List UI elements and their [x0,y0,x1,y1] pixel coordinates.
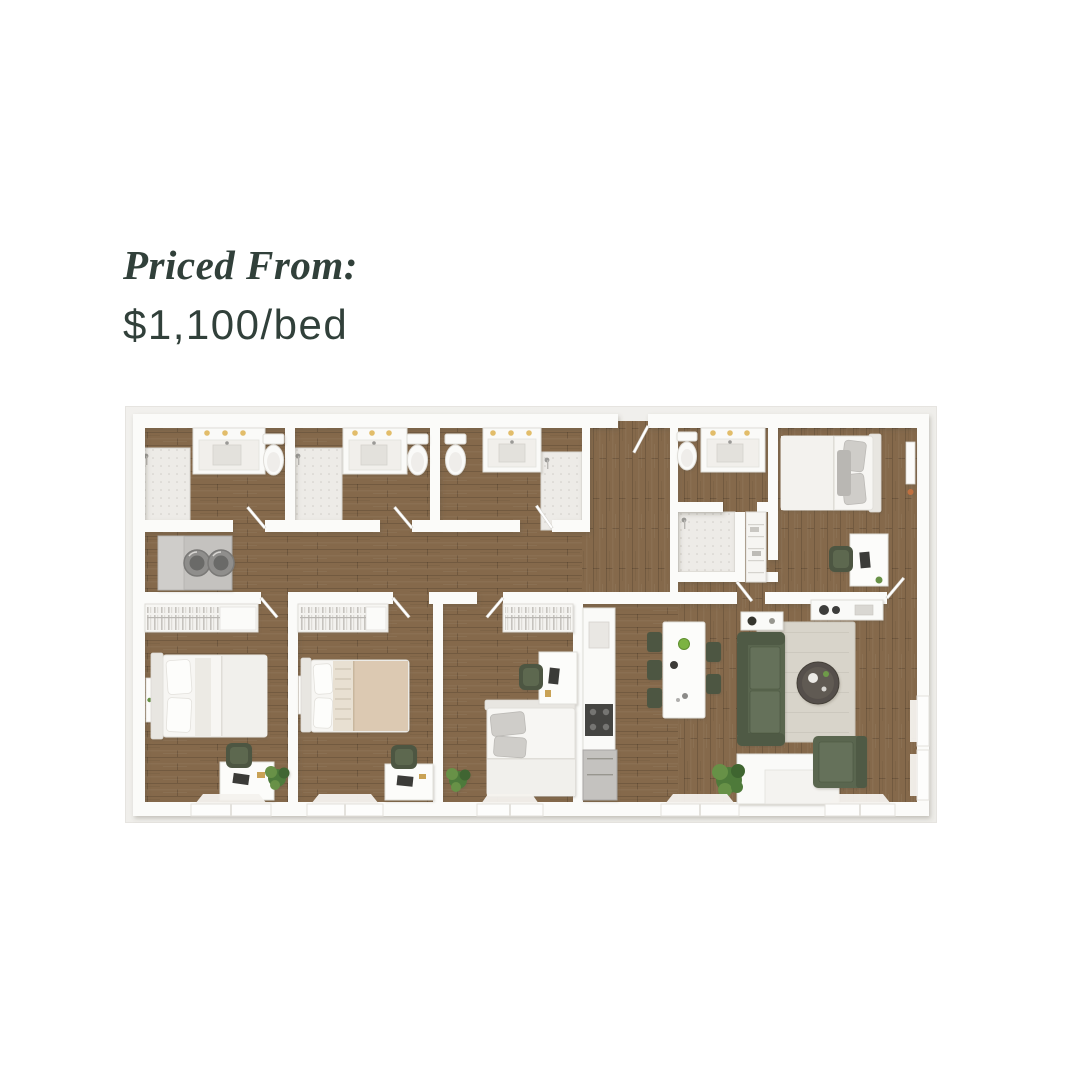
bathroom-1 [193,428,284,475]
price-block: Priced From: $1,100/bed [123,244,358,347]
page: Priced From: $1,100/bed [0,0,1080,1080]
armchair [813,736,867,788]
bed [151,653,267,739]
dining-chair [647,688,662,708]
window [661,794,739,816]
desk [385,764,433,800]
window [910,696,929,746]
bedroom-1-closet [145,604,258,632]
linen-closet [746,512,766,582]
window [477,794,543,816]
price-label: Priced From: [123,244,358,287]
desk-chair [519,664,543,690]
bed [301,658,409,732]
bathroom-2 [343,428,428,475]
lower-cabinet [583,750,617,800]
toilet [445,434,466,475]
side-table [741,612,783,630]
desk-chair [226,743,252,768]
bed [485,700,575,796]
bedroom-3-closet [503,604,573,632]
desk-chair [829,546,853,572]
washer-dryer [158,536,234,590]
desk [539,652,577,704]
closets [145,604,573,632]
vanity [483,428,541,472]
coffee-table [797,662,839,704]
window [825,794,895,816]
floor-plan-image [125,406,937,823]
desk [850,534,888,586]
dining-table [663,622,705,718]
window [307,794,383,816]
vanity [343,428,407,474]
shower-4 [678,512,735,572]
window [191,794,271,816]
window [910,750,929,800]
toilet [263,434,284,475]
desk-chair [391,745,417,769]
stove [585,704,613,736]
price-value: $1,100/bed [123,303,358,347]
bathroom-3 [445,428,541,475]
island-counter [811,600,883,620]
sink [589,622,609,648]
dining-chair [706,674,721,694]
toilet [407,434,428,475]
shower-1 [140,448,190,530]
shower-2 [292,448,342,530]
vanity [193,428,265,474]
vanity [701,428,765,472]
dining-chair [647,660,662,680]
dining-chair [706,642,721,662]
dining-chair [647,632,662,652]
toilet [677,432,697,470]
bed [781,434,881,512]
sofa [737,632,785,746]
bedroom-2-closet [298,604,388,632]
